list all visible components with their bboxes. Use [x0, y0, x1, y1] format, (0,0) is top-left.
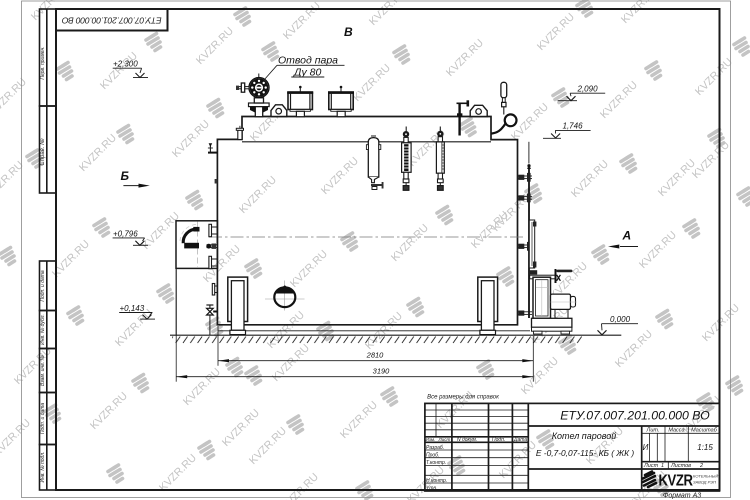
- svg-text:Изм.: Изм.: [426, 437, 436, 442]
- svg-text:Отвод пара: Отвод пара: [278, 55, 338, 67]
- svg-text:+0,143: +0,143: [120, 304, 145, 313]
- svg-text:В: В: [344, 25, 353, 39]
- svg-text:1,746: 1,746: [563, 122, 584, 131]
- svg-text:Масштаб: Масштаб: [691, 428, 718, 434]
- svg-text:Подп. и дата: Подп. и дата: [40, 270, 46, 302]
- svg-text:Инв. № подл.: Инв. № подл.: [40, 451, 46, 482]
- svg-text:1:15: 1:15: [697, 443, 713, 452]
- svg-text:Утв.: Утв.: [426, 486, 437, 492]
- svg-text:И: И: [643, 443, 649, 452]
- svg-text:ЕТУ.07.007.201.00.000 ВО: ЕТУ.07.007.201.00.000 ВО: [560, 409, 710, 423]
- svg-text:Лист: Лист: [438, 437, 451, 442]
- svg-text:+0,796: +0,796: [113, 229, 138, 238]
- svg-text:0,000: 0,000: [610, 315, 631, 324]
- svg-text:Е -0,7-0,07-115- КБ ( ЖК ): Е -0,7-0,07-115- КБ ( ЖК ): [536, 448, 634, 458]
- svg-text:KVZR: KVZR: [658, 472, 693, 489]
- svg-text:N докум.: N докум.: [457, 437, 477, 443]
- svg-text:Формат А3: Формат А3: [663, 493, 701, 500]
- svg-text:Все размеры для справок: Все размеры для справок: [427, 395, 500, 401]
- svg-text:3190: 3190: [373, 367, 391, 376]
- svg-text:Масса: Масса: [668, 428, 684, 434]
- svg-text:ЗАВОД РЭП: ЗАВОД РЭП: [693, 480, 716, 485]
- svg-text:Лист: Лист: [643, 463, 659, 469]
- svg-text:Дата: Дата: [513, 437, 527, 443]
- svg-text:Котел паровой: Котел паровой: [552, 431, 617, 441]
- svg-text:Лит.: Лит.: [646, 428, 660, 434]
- svg-text:2: 2: [699, 463, 703, 469]
- svg-text:Взам. инв. №: Взам. инв. №: [40, 354, 46, 386]
- svg-text:+2,300: +2,300: [113, 60, 138, 69]
- svg-text:Разраб.: Разраб.: [426, 445, 444, 451]
- svg-text:Инв. № дубл.: Инв. № дубл.: [40, 314, 46, 345]
- svg-text:А: А: [622, 229, 632, 243]
- svg-text:2,090: 2,090: [577, 84, 599, 93]
- svg-text:КОТЕЛЬНЫЙ: КОТЕЛЬНЫЙ: [693, 474, 718, 479]
- svg-text:Ду 80: Ду 80: [293, 66, 322, 78]
- svg-text:Подп.: Подп.: [492, 437, 505, 443]
- svg-text:Перв. примен.: Перв. примен.: [40, 46, 46, 79]
- svg-text:Справ. №: Справ. №: [39, 138, 46, 166]
- svg-text:Листов: Листов: [670, 463, 691, 469]
- svg-text:ЕТУ.07.007.201.00.000 ВО: ЕТУ.07.007.201.00.000 ВО: [61, 16, 161, 26]
- svg-text:Подп. и дата: Подп. и дата: [40, 403, 46, 435]
- svg-text:Т.контр.: Т.контр.: [426, 460, 446, 466]
- svg-text:Б: Б: [121, 169, 130, 183]
- svg-text:2810: 2810: [366, 351, 385, 360]
- svg-text:Н.контр.: Н.контр.: [426, 478, 447, 484]
- svg-text:1: 1: [661, 463, 664, 469]
- svg-text:Проб.: Проб.: [426, 453, 439, 459]
